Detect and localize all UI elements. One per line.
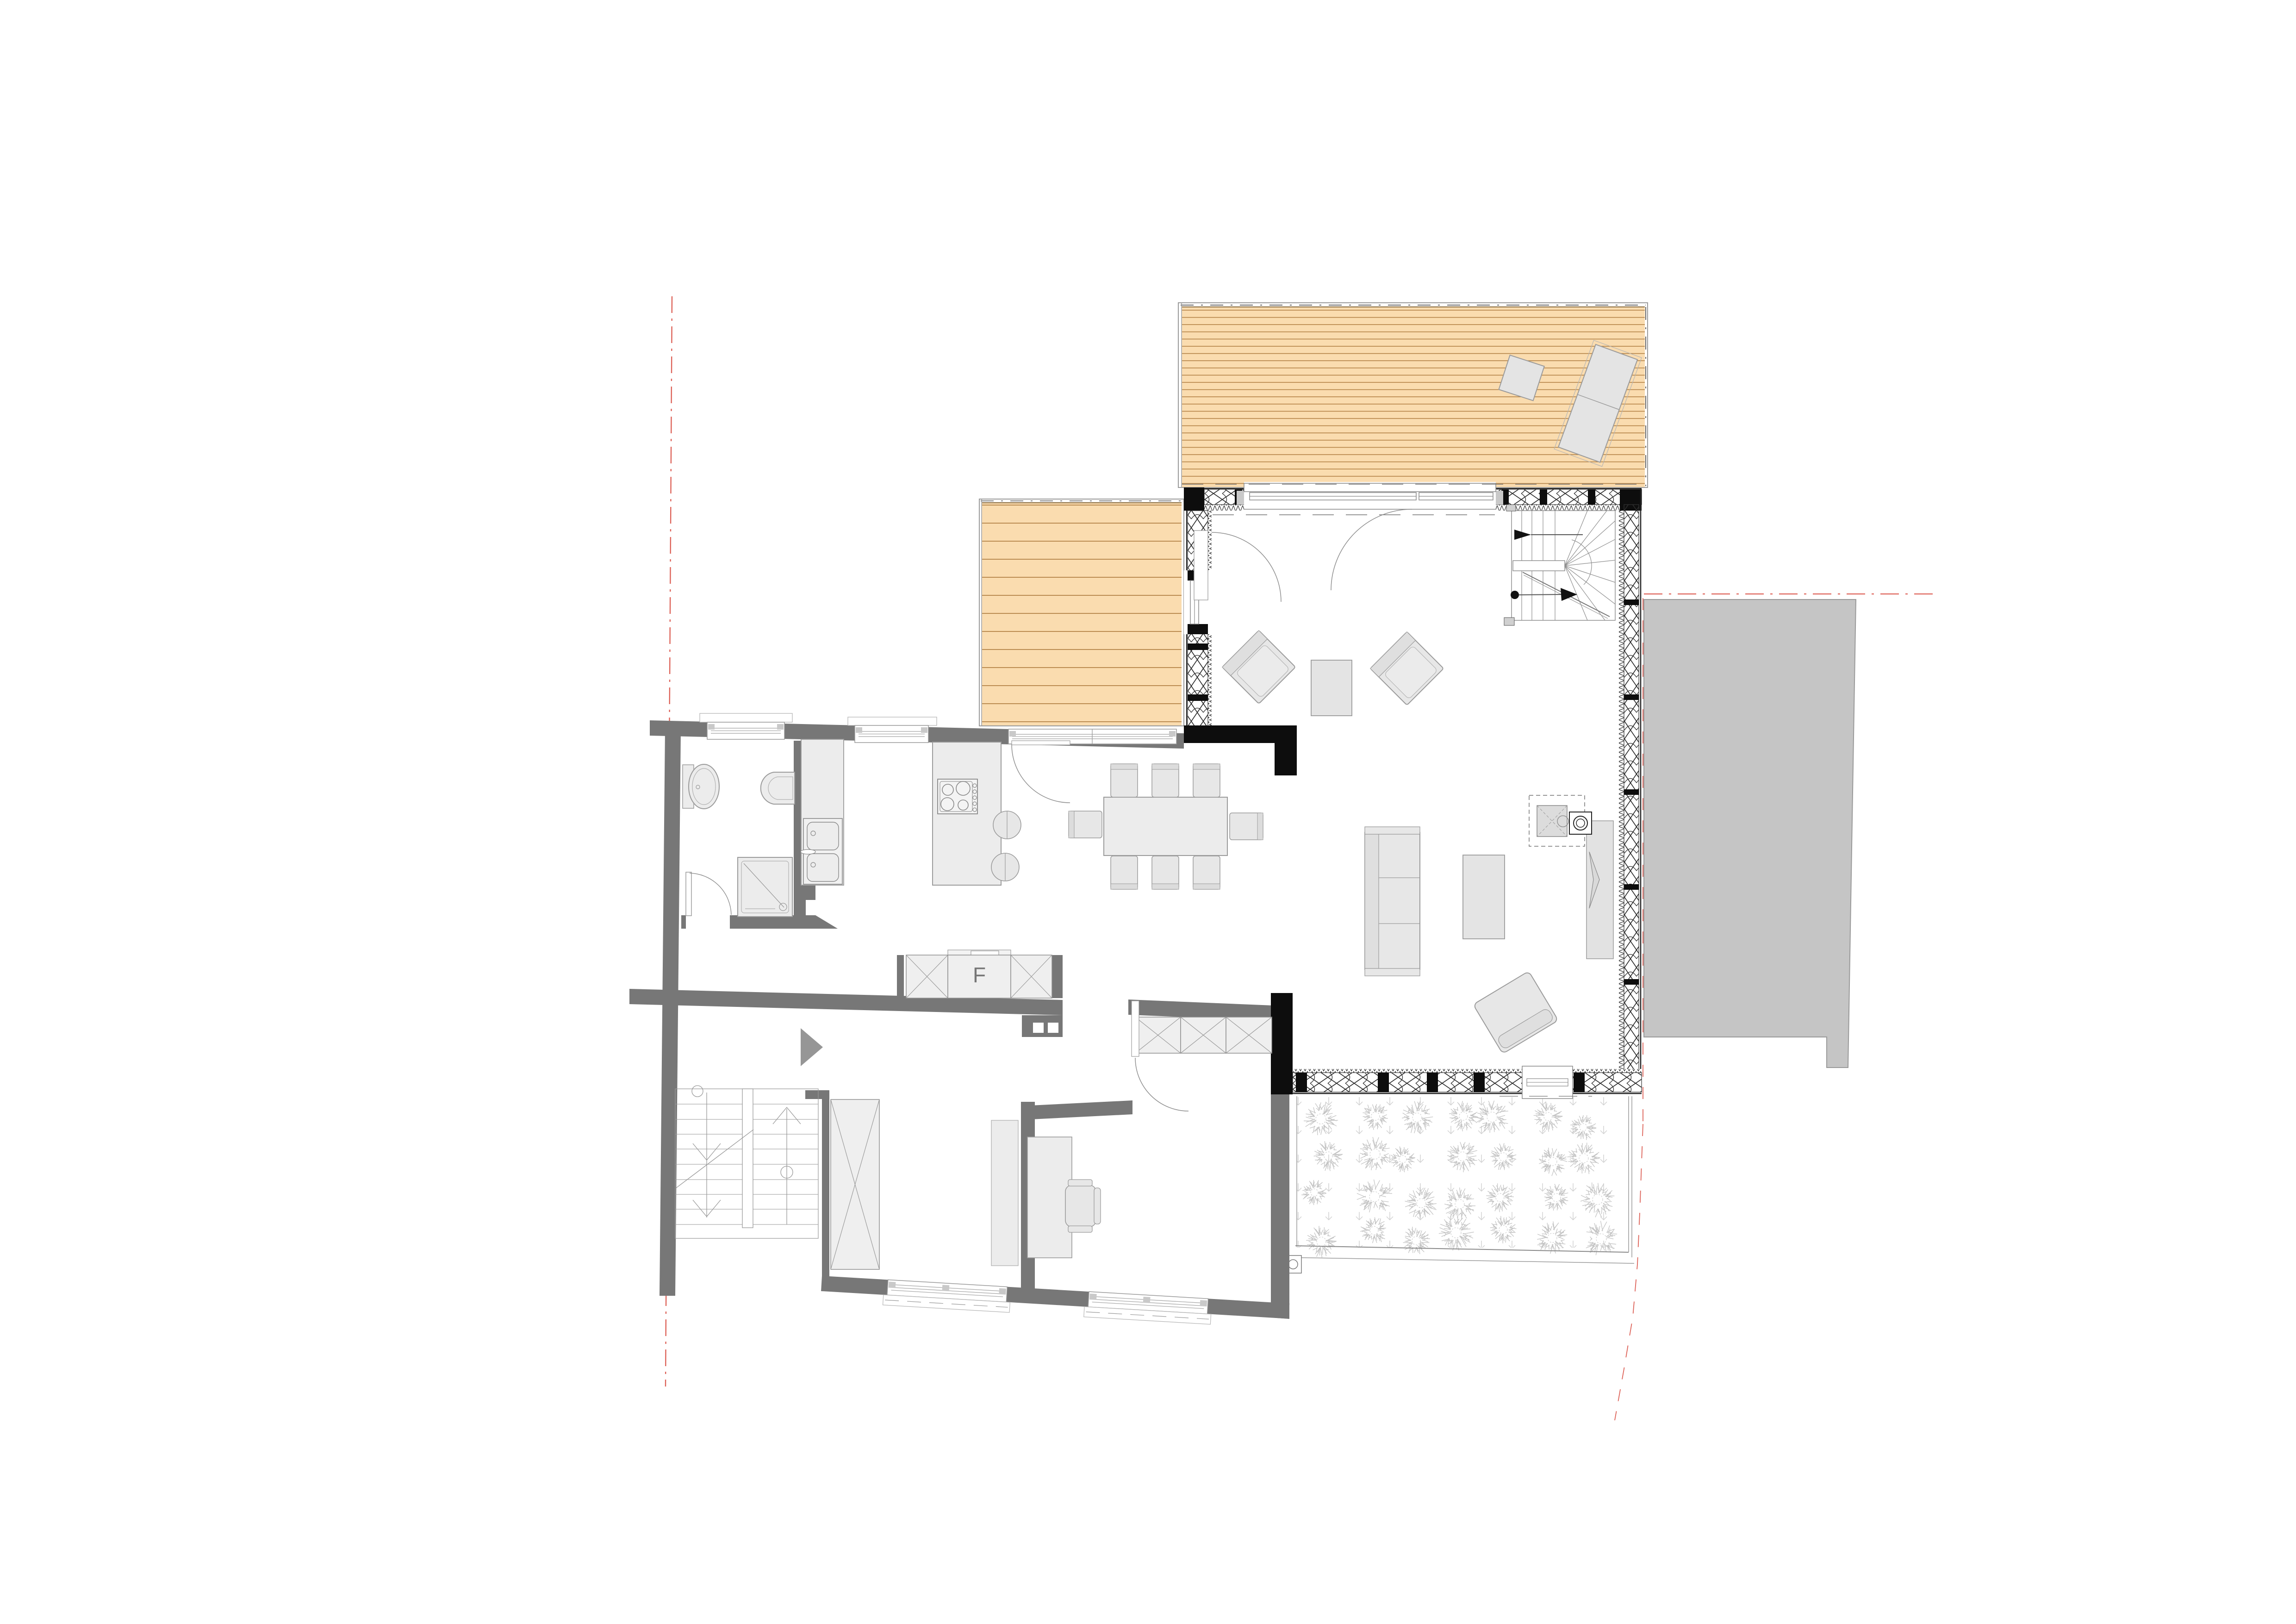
svg-text:F: F bbox=[973, 963, 986, 987]
